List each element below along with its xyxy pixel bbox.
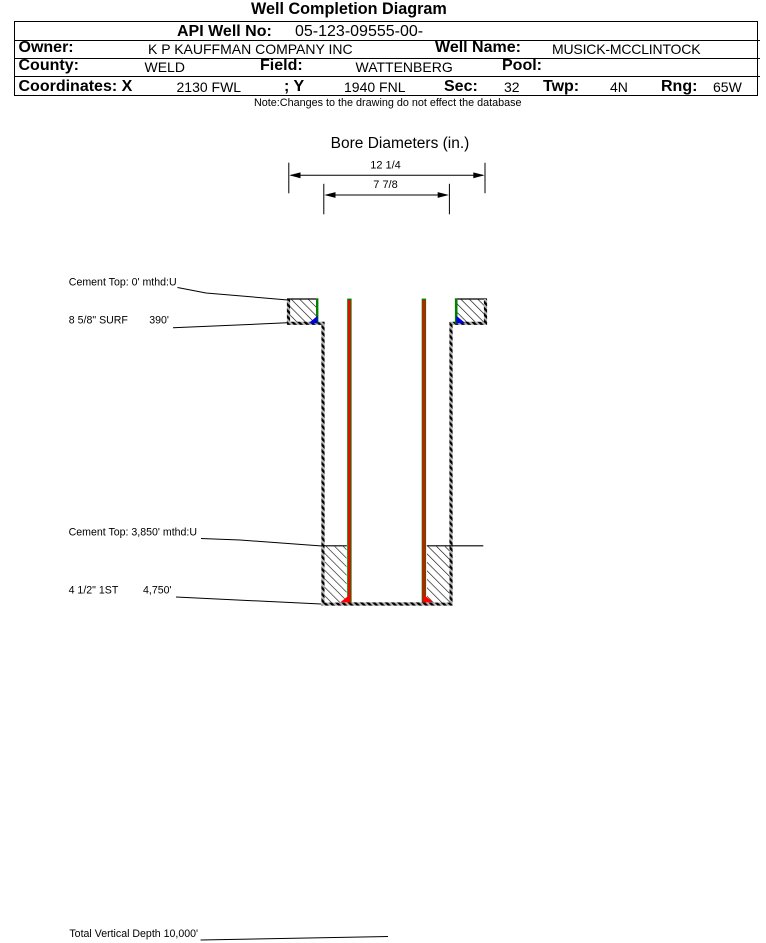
svg-text:8 5/8" SURF: 8 5/8" SURF <box>69 315 129 327</box>
svg-text:4 1/2" 1ST: 4 1/2" 1ST <box>69 585 119 597</box>
svg-text:12 1/4: 12 1/4 <box>370 160 401 172</box>
svg-text:7 7/8: 7 7/8 <box>373 179 397 191</box>
svg-text:Bore Diameters (in.): Bore Diameters (in.) <box>331 135 470 152</box>
svg-text:4,750': 4,750' <box>143 585 172 597</box>
svg-text:390': 390' <box>149 315 169 327</box>
svg-text:Cement Top: 0' mthd:U: Cement Top: 0' mthd:U <box>69 277 177 289</box>
svg-text:Total Vertical Depth 10,000': Total Vertical Depth 10,000' <box>69 928 198 940</box>
svg-text:Cement Top: 3,850' mthd:U: Cement Top: 3,850' mthd:U <box>69 527 197 539</box>
